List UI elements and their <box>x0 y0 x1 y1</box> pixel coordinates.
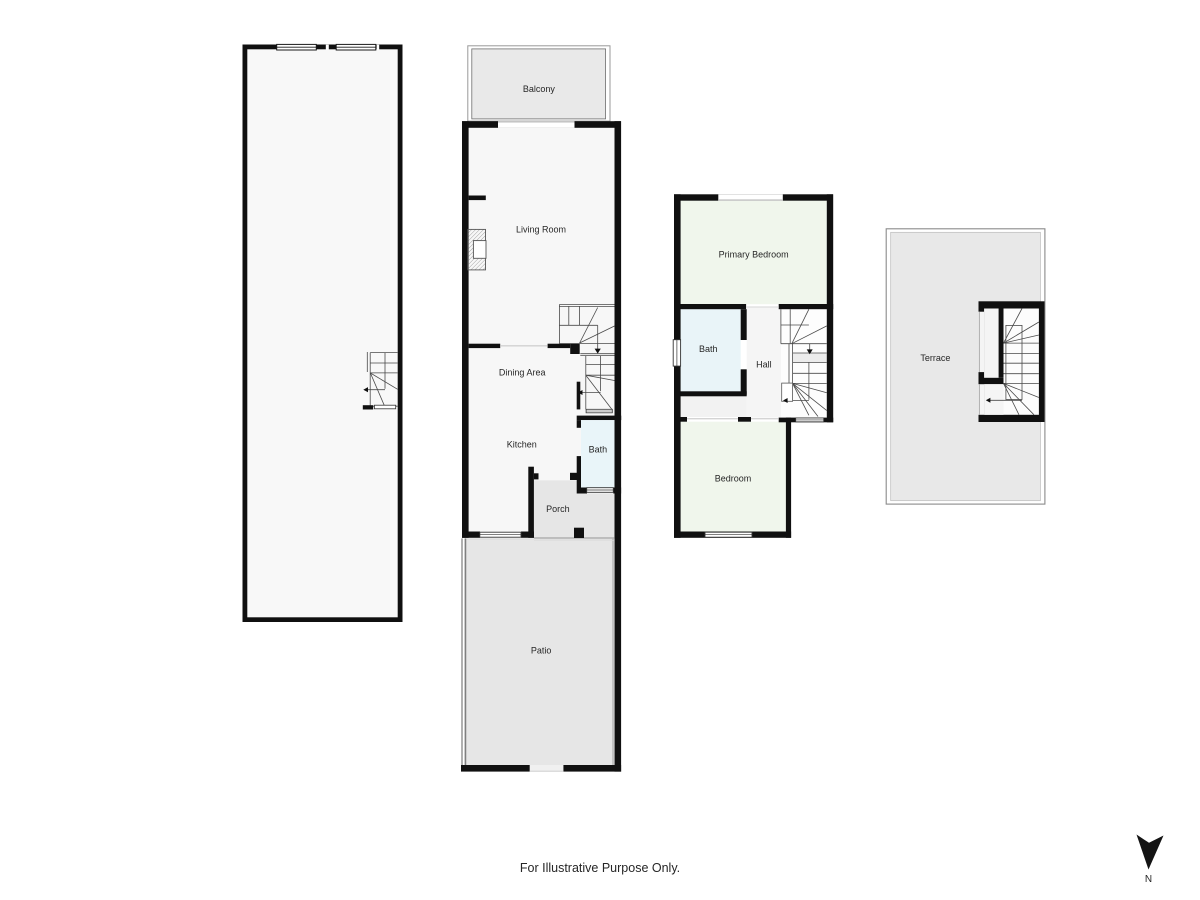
svg-text:Kitchen: Kitchen <box>507 440 537 450</box>
svg-text:Dining Area: Dining Area <box>499 367 546 377</box>
svg-text:Porch: Porch <box>546 504 570 514</box>
svg-text:Bath: Bath <box>589 445 608 455</box>
svg-text:For Illustrative Purpose Only.: For Illustrative Purpose Only. <box>520 861 680 875</box>
svg-text:Balcony: Balcony <box>523 84 556 94</box>
svg-text:Terrace: Terrace <box>920 353 950 363</box>
svg-text:Bedroom: Bedroom <box>715 474 752 484</box>
svg-text:Hall: Hall <box>756 359 772 369</box>
svg-text:Living Room: Living Room <box>516 225 566 235</box>
svg-text:Primary Bedroom: Primary Bedroom <box>719 250 789 260</box>
svg-text:N: N <box>1145 874 1152 885</box>
svg-text:Patio: Patio <box>531 645 552 655</box>
svg-text:Bath: Bath <box>699 344 718 354</box>
